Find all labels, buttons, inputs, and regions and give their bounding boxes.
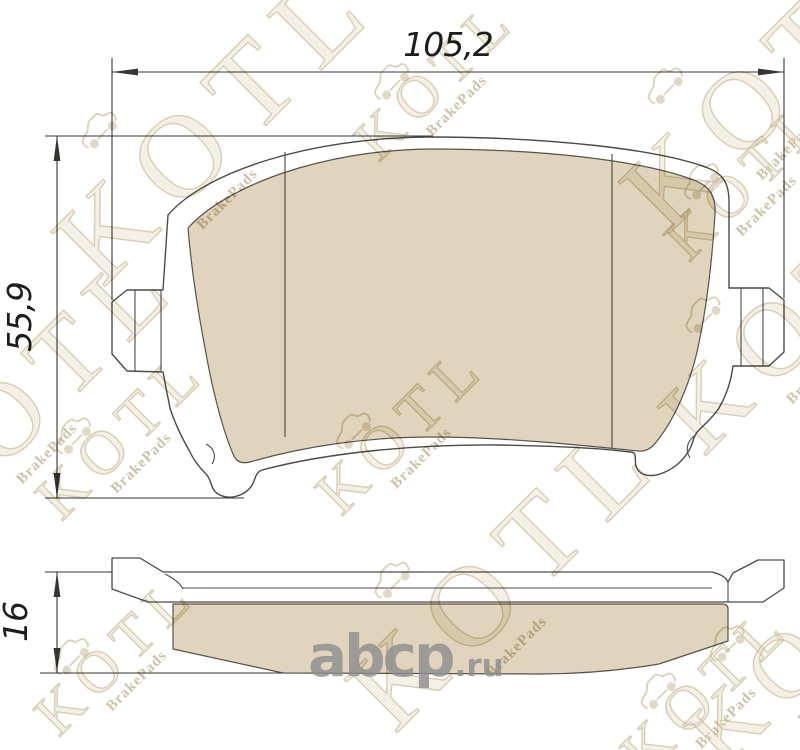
friction-material (188, 149, 715, 463)
side-view (112, 558, 784, 674)
brake-pad-drawing-page: 105,2 55,9 16 KOTLBrakePads KOTLBrakePad… (0, 0, 800, 750)
brake-pad-drawing: 105,2 55,9 16 (0, 0, 800, 750)
side-backing-plate (112, 558, 784, 602)
thickness-dimension-label: 16 (0, 602, 35, 642)
top-view (112, 137, 784, 497)
side-friction-material (173, 604, 728, 674)
width-dimension-label: 105,2 (403, 25, 492, 64)
height-dimension-label: 55,9 (0, 282, 39, 351)
